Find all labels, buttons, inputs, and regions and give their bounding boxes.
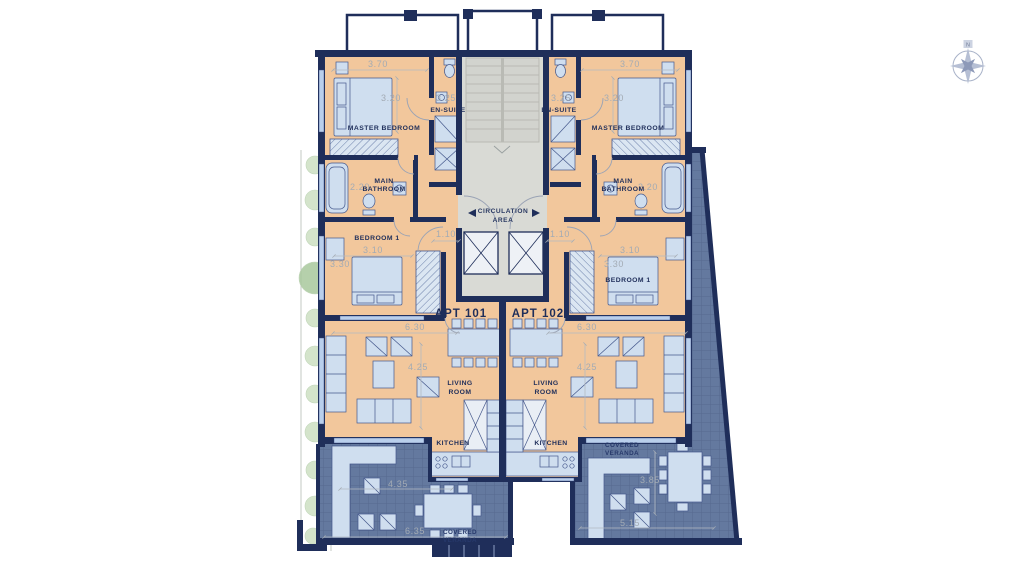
dim-living-width-102: 6.30: [577, 322, 597, 332]
dim-master-depth-102: 3.20: [604, 93, 624, 103]
living-room-label-102-l1: LIVING: [533, 380, 558, 387]
master-bedroom-label-101: MASTER BEDROOM: [348, 125, 420, 132]
stair-core: [456, 55, 549, 302]
wardrobe: [330, 139, 398, 157]
dim-bedroom1-depth-101: 3.30: [330, 259, 350, 269]
compass-north-label: N: [966, 43, 970, 49]
bedroom1-label-101: BEDROOM 1: [354, 235, 399, 242]
dim-hall-102: 1.10: [550, 229, 570, 239]
living-room-label-101-l1: LIVING: [447, 380, 472, 387]
main-bathroom-label-101-l1: MAIN: [374, 178, 393, 185]
dim-veranda-width-101: 6.35: [405, 526, 425, 536]
ensuite-label-101: EN-SUITE: [430, 107, 465, 114]
living-room-label-101-l2: ROOM: [449, 389, 472, 396]
dim-ensuite-101: 3.25: [436, 93, 456, 103]
main-bathroom-label-102-l1: MAIN: [613, 178, 632, 185]
apt-101-label: APT 101: [435, 308, 487, 320]
main-bathroom-label-101-l2: BATHROOM: [362, 186, 405, 193]
dim-master-width-101: 3.70: [368, 59, 388, 69]
wardrobe: [416, 251, 440, 313]
dim-bedroom1-depth-102: 3.30: [604, 259, 624, 269]
parapet-lines: [347, 11, 663, 52]
dim-master-depth-101: 3.20: [381, 93, 401, 103]
garden-steps: [432, 545, 512, 557]
circulation-label-l1: CIRCULATION: [478, 208, 528, 215]
circulation-label-l2: AREA: [493, 217, 514, 224]
floor-plan-canvas: 3.70 3.20 3.25 EN-SUITE MASTER BEDROOM 2…: [0, 0, 1024, 576]
veranda-label-102-l1: COVERED: [605, 442, 639, 449]
dim-bedroom1-width-101: 3.10: [363, 245, 383, 255]
dim-veranda-depth-101: 4.35: [388, 479, 408, 489]
living-room-label-102-l2: ROOM: [535, 389, 558, 396]
bedroom1-label-102: BEDROOM 1: [605, 277, 650, 284]
compass-icon: N: [950, 40, 986, 84]
dim-hall-101: 1.10: [436, 229, 456, 239]
floor-plan-drawing: 3.70 3.20 3.25 EN-SUITE MASTER BEDROOM 2…: [0, 0, 1024, 576]
dim-master-width-102: 3.70: [620, 59, 640, 69]
main-bathroom-label-102-l2: BATHROOM: [601, 186, 644, 193]
apt-102-label: APT 102: [512, 308, 564, 320]
dim-bedroom1-width-102: 3.10: [620, 245, 640, 255]
dim-veranda-depth-102: 3.85: [640, 475, 660, 485]
master-bedroom-label-102: MASTER BEDROOM: [592, 125, 664, 132]
dim-living-depth-101: 4.25: [408, 362, 428, 372]
dim-ensuite-102: 3.25: [551, 93, 571, 103]
veranda-label-101-l1: COVERED: [443, 529, 477, 536]
dim-living-width-101: 6.30: [405, 322, 425, 332]
ensuite-label-102: EN-SUITE: [541, 107, 576, 114]
veranda-label-101-l2: VERANDA: [443, 537, 477, 544]
kitchen-label-102: KITCHEN: [534, 440, 567, 447]
dim-veranda-width-102: 5.15: [620, 518, 640, 528]
dim-living-depth-102: 4.25: [577, 362, 597, 372]
veranda-label-102-l2: VERANDA: [605, 450, 639, 457]
kitchen-label-101: KITCHEN: [436, 440, 469, 447]
